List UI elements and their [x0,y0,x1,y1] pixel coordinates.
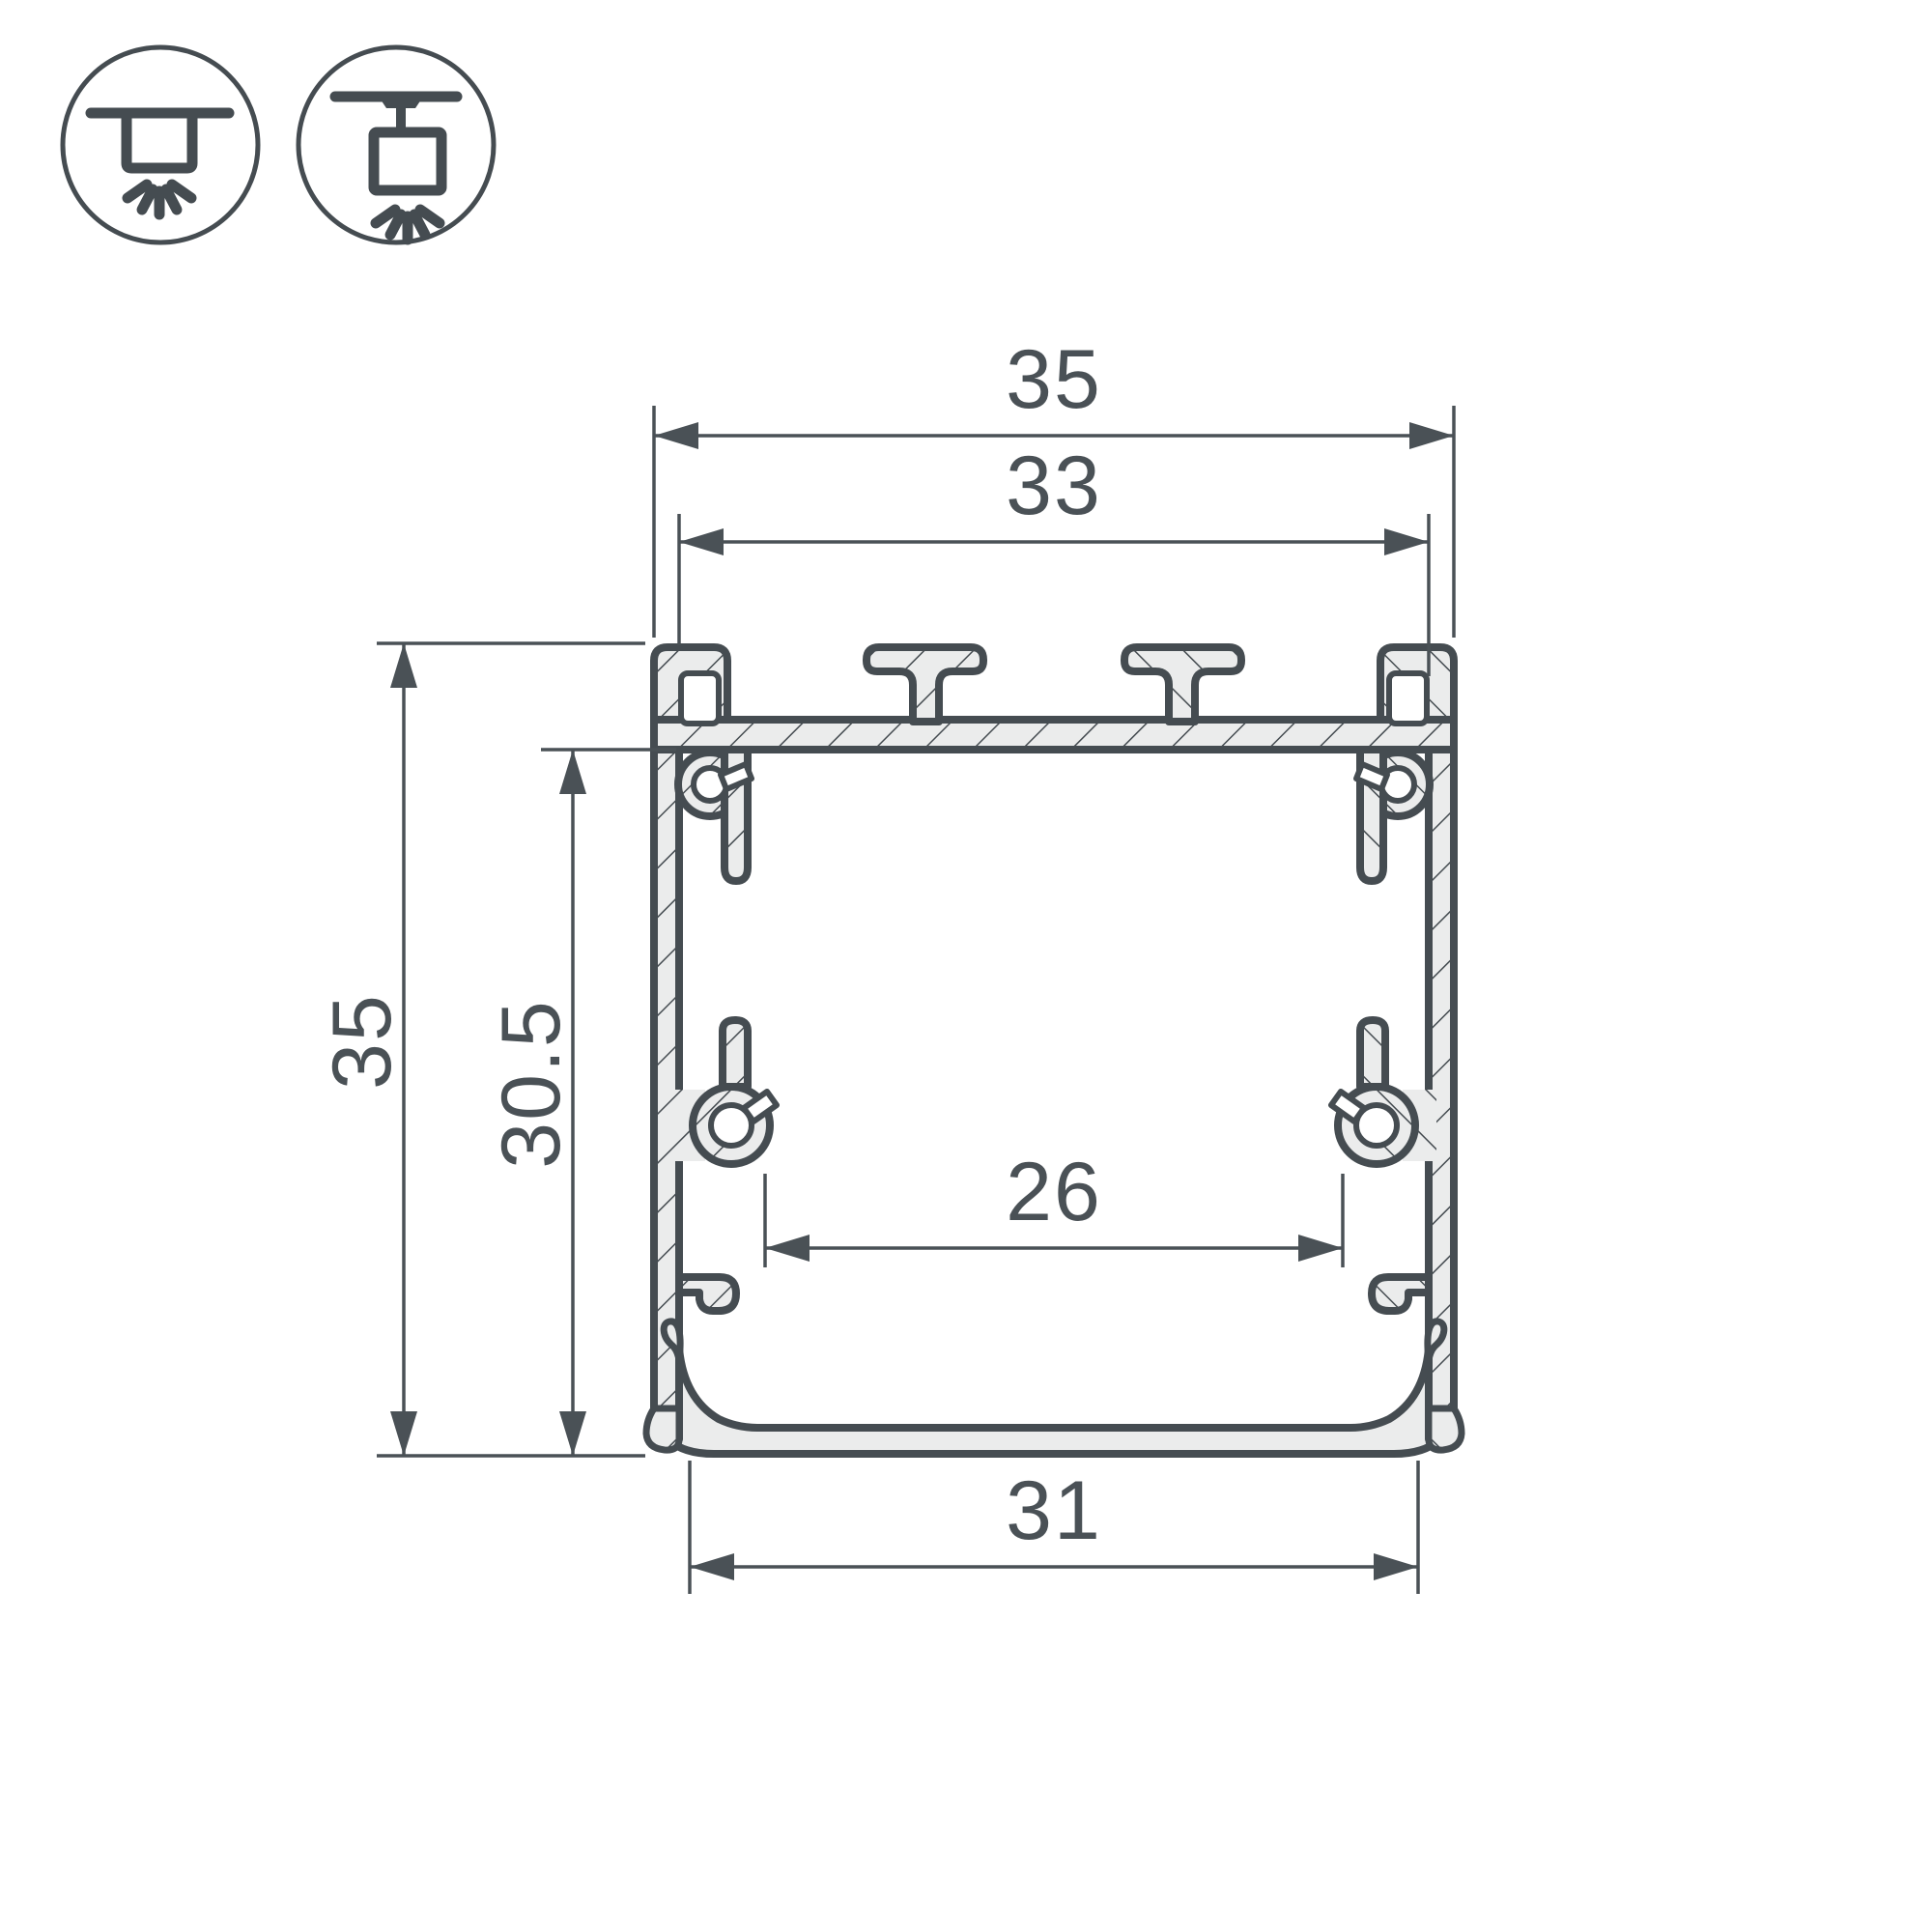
technical-drawing-page: 35 33 35 30.5 26 31 [0,0,1932,1932]
dim-label-inner-height: 30.5 [485,999,578,1168]
profile-cross-section-drawing: 35 33 35 30.5 26 31 [0,0,1932,1932]
dim-label-overall-height: 35 [316,993,409,1090]
pendant-mount-light-icon [298,47,494,242]
dim-label-top-overall-width: 35 [1006,333,1102,426]
dimension-inner-height: 30.5 [485,750,676,1456]
surface-mount-light-icon [63,47,258,242]
dim-label-top-inner-width: 33 [1006,440,1102,532]
dimension-overall-height: 35 [316,643,645,1456]
dimension-bottom-width: 31 [690,1461,1418,1594]
dim-label-bottom-width: 31 [1006,1464,1102,1557]
top-plate [654,720,1454,750]
dim-label-inner-slot-width: 26 [1006,1146,1102,1238]
inner-chamber [679,750,1429,1428]
dimension-top-inner-width: 33 [679,440,1429,676]
aluminum-profile-body [646,647,1462,1454]
